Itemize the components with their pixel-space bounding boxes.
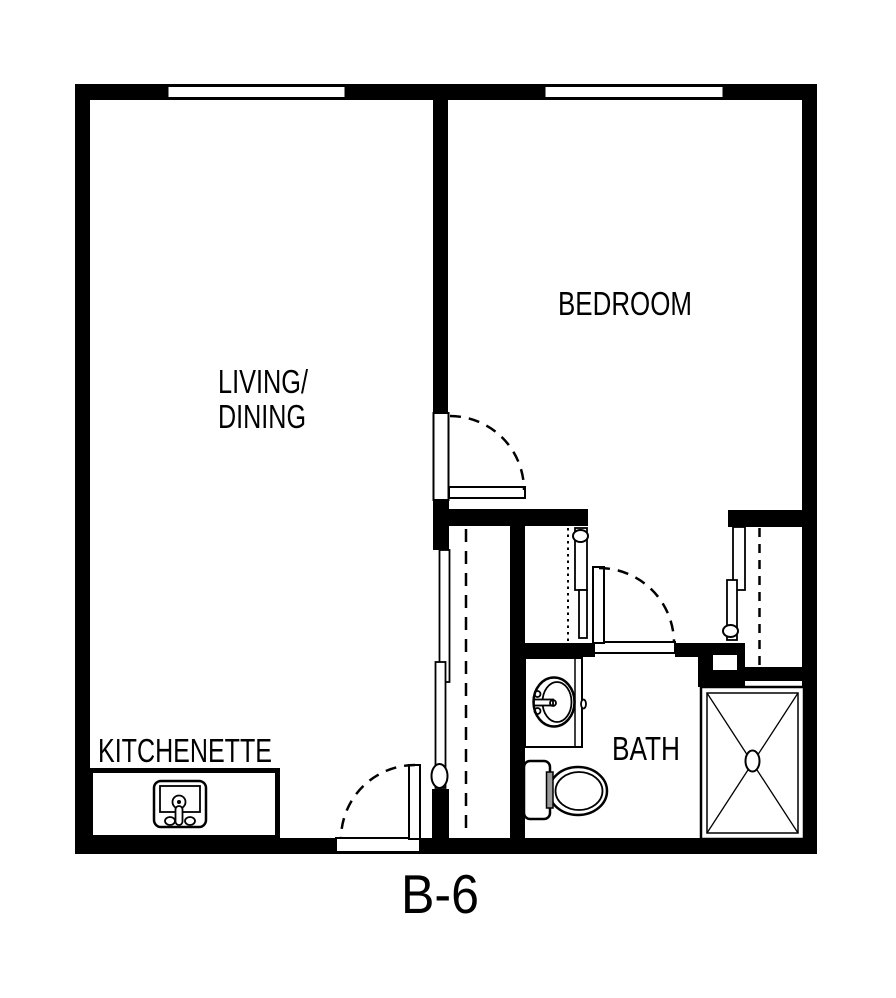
floor-plan-svg: LIVING/ DINING BEDROOM KITCHENETTE BATH … [0, 0, 896, 998]
bath-label: BATH [612, 730, 680, 767]
unit-label: B-6 [401, 863, 479, 925]
bath-door-leaf [593, 567, 604, 643]
vanity-handle-tick [581, 700, 586, 709]
toilet-flush-strip [547, 772, 554, 808]
shower-fixture [701, 687, 804, 839]
floor-plan-page: LIVING/ DINING BEDROOM KITCHENETTE BATH … [0, 0, 896, 998]
hall-closet-door-pull [432, 764, 448, 788]
bedroom-closet-door-pull [723, 625, 738, 637]
linen-closet-door-pull [573, 530, 588, 542]
wall-bedroom-closet-bottom [745, 667, 807, 681]
kitchen-sink-faucet-handle-left [165, 817, 175, 825]
shower-drain [746, 751, 760, 772]
kitchen-sink-drain-dot [177, 800, 181, 804]
living-dining-label-line2: DINING [218, 398, 306, 435]
bath-door-threshold [594, 642, 675, 653]
toilet-bowl-outer [549, 767, 607, 815]
toilet-fixture [524, 761, 607, 819]
bedroom-door-jamb [434, 413, 449, 500]
wall-living-bedroom-divider [433, 100, 448, 413]
wall-closet-bottom-stub [432, 789, 449, 838]
kitchen-sink-fixture [154, 781, 206, 827]
bath-door-arc [599, 568, 674, 643]
entry-door [336, 765, 420, 852]
entry-door-arc [341, 765, 415, 839]
bathroom-sink-fixture [525, 658, 586, 747]
linen-closet [568, 528, 588, 641]
living-dining-label-line1: LIVING/ [218, 363, 309, 400]
bedroom-door-leaf [449, 487, 525, 498]
wall-bath-door-right [675, 643, 745, 657]
bath-door [593, 567, 675, 653]
wall-bedroom-vestibule-right [728, 510, 817, 527]
bedroom-door-arc [450, 416, 524, 490]
kitchen-sink-faucet-spout [176, 806, 183, 825]
wall-bath-door-left [510, 643, 595, 657]
linen-closet-door-panel-2 [579, 590, 587, 638]
outer-wall-left [75, 84, 90, 854]
kitchen-sink-faucet-handle-right [185, 817, 195, 825]
outer-wall-bottom [75, 838, 817, 854]
bedroom-door [434, 413, 526, 500]
window-living [168, 86, 346, 98]
kitchenette-counter [91, 771, 278, 838]
window-bedroom [545, 86, 724, 98]
bedroom-label: BEDROOM [558, 285, 692, 322]
kitchenette-label: KITCHENETTE [98, 732, 272, 769]
entry-door-threshold [336, 838, 420, 852]
wall-chase-notch [713, 655, 737, 670]
entry-door-leaf [409, 765, 420, 839]
